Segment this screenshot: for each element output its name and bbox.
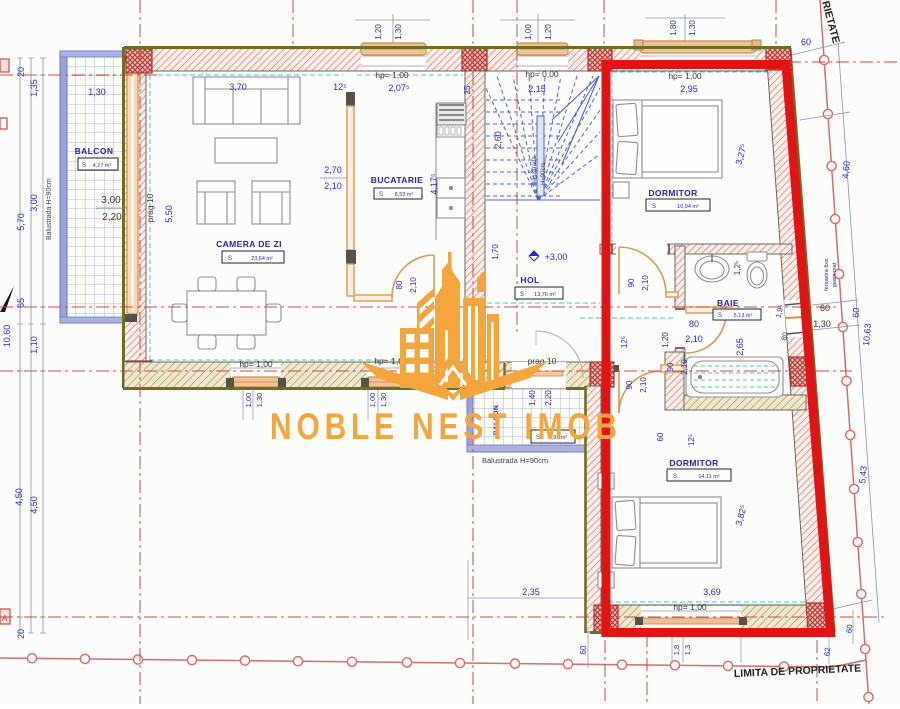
svg-text:2,15: 2,15 [528,84,546,94]
svg-text:2,95: 2,95 [680,84,698,94]
svg-text:1,30: 1,30 [688,20,697,36]
svg-text:60: 60 [851,307,862,318]
svg-text:60: 60 [579,645,588,654]
svg-text:1,20: 1,20 [374,24,383,40]
svg-text:S: S [379,192,383,198]
svg-text:2,10: 2,10 [641,275,650,291]
svg-text:4,27 m²: 4,27 m² [93,163,112,169]
svg-text:geam mat: geam mat [832,262,838,287]
svg-text:60: 60 [845,623,855,633]
svg-text:2,07⁵: 2,07⁵ [388,83,410,93]
svg-text:3,00: 3,00 [29,194,39,212]
svg-text:1,40: 1,40 [528,390,537,406]
svg-text:Balustrada H=90cm: Balustrada H=90cm [46,178,53,240]
svg-text:12⁵: 12⁵ [620,336,629,348]
svg-text:10,63: 10,63 [861,323,873,346]
svg-text:hp= 0,00: hp= 0,00 [525,69,559,79]
svg-text:1,00: 1,00 [524,24,533,40]
svg-text:S: S [228,256,232,262]
svg-text:12⁵: 12⁵ [687,434,696,446]
svg-text:A: A [2,614,8,623]
svg-text:Balustrada H=90cm: Balustrada H=90cm [482,456,548,465]
svg-text:1,80: 1,80 [669,20,678,36]
svg-text:65: 65 [16,298,26,308]
svg-text:2,65: 2,65 [735,338,745,356]
svg-text:62: 62 [823,646,833,656]
svg-text:2,10: 2,10 [409,277,418,293]
svg-text:1,3: 1,3 [683,645,692,655]
svg-text:BAIE: BAIE [717,298,739,308]
svg-text:1,20: 1,20 [544,24,553,40]
svg-text:HOL: HOL [520,275,539,285]
svg-text:5,43: 5,43 [857,466,868,484]
svg-text:H=90cm: H=90cm [541,162,547,185]
svg-text:80: 80 [395,280,404,289]
svg-text:2,10: 2,10 [680,359,689,375]
svg-text:hp= 1,00: hp= 1,00 [673,602,707,612]
svg-text:4,50: 4,50 [29,496,39,514]
svg-text:1,70: 1,70 [491,244,500,260]
svg-text:4,50: 4,50 [14,488,24,506]
svg-text:90: 90 [666,362,675,371]
svg-text:1,30: 1,30 [88,87,106,97]
svg-text:DORMITOR: DORMITOR [648,188,697,198]
svg-text:prag 10: prag 10 [145,193,155,222]
svg-text:5,13 m²: 5,13 m² [734,313,753,319]
svg-text:60: 60 [820,303,830,313]
svg-text:2,10: 2,10 [639,377,648,393]
svg-text:20: 20 [16,629,26,639]
svg-text:DORMITOR: DORMITOR [669,458,718,468]
svg-text:13,76 m²: 13,76 m² [534,292,556,298]
svg-text:+3,00: +3,00 [545,252,568,262]
svg-text:CAMERA DE ZI: CAMERA DE ZI [216,239,282,249]
svg-text:2,10: 2,10 [324,181,342,191]
svg-text:BUCATARIE: BUCATARIE [371,175,423,185]
svg-text:8,53 m²: 8,53 m² [395,192,414,198]
svg-text:80: 80 [689,319,699,329]
svg-text:2,70: 2,70 [324,165,342,175]
svg-text:2,10: 2,10 [685,334,703,344]
svg-text:90: 90 [625,380,634,389]
svg-text:Balustrada: Balustrada [532,156,538,185]
svg-text:hp= 1,00: hp= 1,00 [668,71,702,81]
svg-text:1,30: 1,30 [813,319,831,329]
svg-text:5,70: 5,70 [16,213,26,231]
svg-text:S: S [718,313,722,319]
svg-text:4,17⁵: 4,17⁵ [429,173,439,195]
svg-text:NOBLE NEST IMOB: NOBLE NEST IMOB [270,406,622,447]
svg-text:12⁵: 12⁵ [333,82,347,92]
svg-text:23,64 m²: 23,64 m² [251,256,273,262]
svg-text:60: 60 [656,432,665,441]
svg-text:1,2⁵: 1,2⁵ [733,261,742,275]
svg-text:10,94 m²: 10,94 m² [677,204,699,210]
svg-text:14,11 m²: 14,11 m² [698,474,719,480]
svg-text:10,60: 10,60 [2,325,12,348]
svg-text:60: 60 [801,37,811,47]
svg-text:1,8: 1,8 [672,645,681,655]
svg-text:1,30: 1,30 [394,24,403,40]
svg-text:3,70: 3,70 [229,82,247,92]
svg-text:1,10: 1,10 [29,336,39,354]
svg-text:4,60: 4,60 [840,161,851,179]
svg-text:S: S [673,474,677,480]
svg-text:1,30: 1,30 [255,393,264,408]
svg-text:BALCON: BALCON [75,146,114,156]
svg-text:2,60: 2,60 [493,131,503,149]
svg-text:90: 90 [627,278,636,287]
svg-text:S: S [82,163,86,169]
svg-text:hp= 1,00: hp= 1,00 [239,359,273,369]
svg-text:S: S [520,292,524,298]
svg-text:3,69: 3,69 [703,587,721,597]
svg-text:1,20: 1,20 [661,332,670,348]
svg-text:2,35: 2,35 [522,587,540,597]
svg-text:3,00: 3,00 [101,195,121,206]
svg-text:2,20: 2,20 [544,390,553,406]
svg-text:S: S [652,204,656,210]
svg-text:hp= 1,00: hp= 1,00 [375,70,409,80]
svg-text:2,20: 2,20 [102,212,122,223]
svg-text:1,35: 1,35 [29,79,39,97]
svg-text:1,00: 1,00 [244,393,253,408]
svg-text:fereastra fixa: fereastra fixa [824,258,830,291]
svg-text:5,50: 5,50 [164,205,174,223]
svg-text:25: 25 [463,85,472,94]
svg-text:20: 20 [16,67,26,77]
